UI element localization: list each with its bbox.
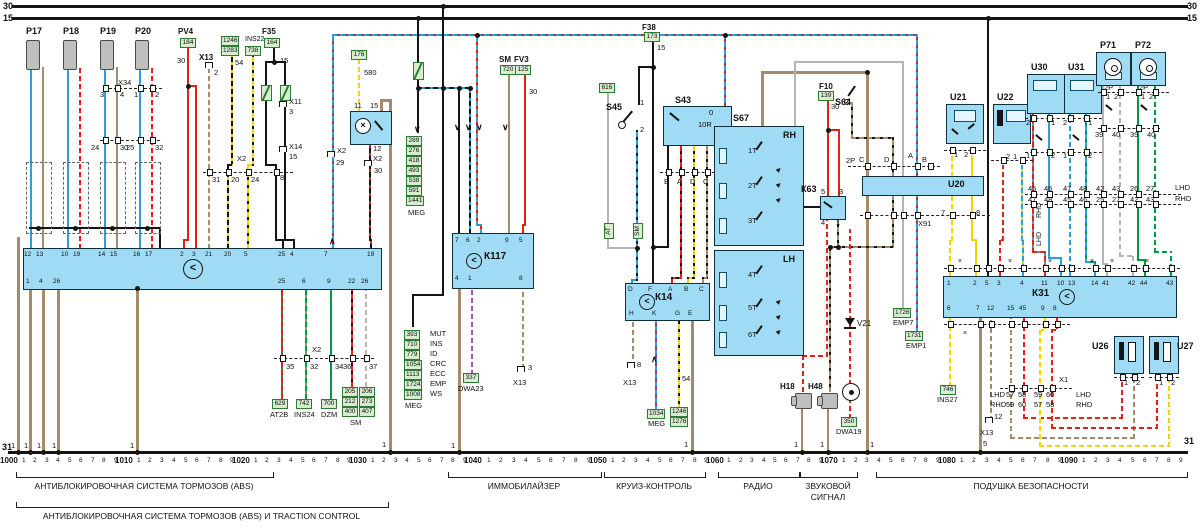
label: 2 xyxy=(1026,119,1030,127)
label: 1 xyxy=(37,442,41,450)
label: 2 xyxy=(1063,119,1067,127)
label: EMP xyxy=(430,380,446,388)
junction-dot xyxy=(145,226,150,231)
label: 43 xyxy=(1166,281,1173,288)
wire xyxy=(829,246,831,392)
label: 1 xyxy=(52,442,56,450)
code-tag: 1034 xyxy=(647,409,665,419)
code-tag: 742 xyxy=(296,399,312,409)
wire xyxy=(971,155,973,177)
inline-connector-pin xyxy=(279,146,287,152)
wire xyxy=(794,61,904,63)
label: P72 xyxy=(1135,41,1151,50)
label: 11 xyxy=(354,102,362,110)
code-tag: 164 xyxy=(264,38,280,48)
resistor xyxy=(719,332,727,348)
label: 15 xyxy=(280,57,288,65)
resistor xyxy=(719,148,727,164)
label: U30 xyxy=(1031,63,1048,72)
label: 2 xyxy=(1006,153,1010,161)
scale-tick: 6 xyxy=(1021,458,1025,465)
label: C xyxy=(699,287,704,294)
label: 12 xyxy=(373,145,381,153)
label: G xyxy=(675,311,680,318)
label: LH xyxy=(783,255,795,264)
junction-dot xyxy=(800,450,805,455)
connector-pin xyxy=(1068,149,1074,156)
section-bracket xyxy=(718,472,800,478)
scale-tick: 3 xyxy=(750,458,754,465)
shield-box xyxy=(26,162,52,234)
label: 1 xyxy=(382,441,386,449)
scale-tick: 8 xyxy=(102,458,106,465)
wire xyxy=(1023,417,1123,419)
wire xyxy=(802,355,804,392)
scale-tick: 1 xyxy=(611,458,615,465)
scale-tick: 4 xyxy=(524,458,528,465)
scale-tick: 2 xyxy=(1094,458,1098,465)
wire xyxy=(1137,207,1139,261)
label: 27 xyxy=(1112,196,1120,204)
label: PV4 xyxy=(178,28,193,36)
junction-dot xyxy=(135,450,140,455)
clock-spring-u20 xyxy=(862,176,984,196)
fuse-icon xyxy=(413,62,424,80)
label: 1 xyxy=(26,279,30,286)
connector-pin xyxy=(692,169,698,176)
label: LHD xyxy=(1076,391,1091,399)
horn-tab xyxy=(817,396,823,406)
wire xyxy=(680,143,682,279)
connector-pin xyxy=(364,355,370,362)
brand-logo: < xyxy=(466,253,482,269)
label: X2 xyxy=(337,147,346,155)
connector-pin xyxy=(138,85,144,92)
scale-tick: 3 xyxy=(634,458,638,465)
element xyxy=(1128,342,1136,362)
element xyxy=(997,110,1003,126)
label: 19 xyxy=(367,252,374,259)
label: 2 xyxy=(1149,93,1153,101)
label: 1 xyxy=(468,276,472,283)
label: 30 xyxy=(177,57,185,65)
label: 13 xyxy=(36,252,43,259)
inner-dot xyxy=(1146,65,1153,72)
connector-pin xyxy=(329,355,335,362)
label: RHD xyxy=(1175,195,1191,203)
connector-pin xyxy=(138,137,144,144)
code-tag: 1283 xyxy=(221,46,239,56)
label: D xyxy=(628,287,633,294)
junction-dot xyxy=(73,226,78,231)
wire xyxy=(655,318,657,411)
label: RH xyxy=(783,131,796,140)
label: SM xyxy=(350,419,361,427)
label: S45 xyxy=(606,103,622,112)
code-tag: 1246 xyxy=(221,36,239,46)
scale-tick: 5 xyxy=(184,458,188,465)
label: 1 xyxy=(1124,379,1128,387)
label: × xyxy=(958,258,962,265)
label: 1 xyxy=(1159,379,1163,387)
scale-number: 1040 xyxy=(464,457,482,465)
label: RHD xyxy=(1076,401,1092,409)
scale-tick: 2 xyxy=(972,458,976,465)
connector-pin xyxy=(1059,265,1065,272)
label: 4 xyxy=(455,276,459,283)
label: 5 xyxy=(821,188,825,196)
junction-dot xyxy=(468,86,473,91)
wire xyxy=(136,287,139,453)
label: 4 xyxy=(290,252,294,259)
shield-box xyxy=(63,162,89,234)
fuse-line xyxy=(281,85,289,100)
code-tag: 173 xyxy=(644,32,660,42)
code-tag: 779 xyxy=(404,350,420,360)
junction-dot xyxy=(828,245,833,250)
code-tag: 700 xyxy=(321,399,337,409)
splice-arrow-icon: ∨ xyxy=(454,123,461,132)
inner-dot xyxy=(1111,65,1118,72)
wire xyxy=(826,217,828,357)
label: 1 xyxy=(1141,93,1145,101)
label: F xyxy=(648,287,652,294)
wire xyxy=(17,237,20,453)
label: X34 xyxy=(118,79,131,87)
label: 6 xyxy=(302,279,306,286)
connector-pin xyxy=(928,163,934,170)
resistor xyxy=(719,218,727,234)
label: X2 xyxy=(312,346,321,354)
power-rail-30 xyxy=(12,5,1188,8)
connector-pin xyxy=(865,212,871,219)
code-tag: 720 xyxy=(500,65,516,75)
label: 35 xyxy=(286,363,294,371)
label: 30 xyxy=(529,88,537,96)
label: 15 xyxy=(370,102,378,110)
section-bracket xyxy=(800,472,858,478)
connector-row xyxy=(274,358,374,359)
wire xyxy=(29,287,32,453)
label: 30 xyxy=(1187,2,1197,11)
code-tag: 493 xyxy=(406,166,422,176)
power-rail-15 xyxy=(12,17,1188,20)
splice-arrow-icon: ∨ xyxy=(502,123,509,132)
label: 9 xyxy=(327,279,331,286)
connector-pin xyxy=(891,163,897,170)
code-tag: 350 xyxy=(841,417,857,427)
code-tag: 139 xyxy=(818,91,834,101)
label: 45 xyxy=(1063,196,1071,204)
label: F35 xyxy=(262,28,276,36)
label: 43 xyxy=(1146,196,1154,204)
scale-tick: 1 xyxy=(254,458,258,465)
scale-number: 1080 xyxy=(938,457,956,465)
code-tag: 1276 xyxy=(670,417,688,427)
scale-tick: 4 xyxy=(405,458,409,465)
fuse-icon xyxy=(261,85,272,101)
label: U27 xyxy=(1177,342,1194,351)
wire xyxy=(1044,251,1046,277)
resistor xyxy=(719,272,727,288)
junction-dot xyxy=(651,245,656,250)
label: 40 xyxy=(1112,131,1120,139)
label: 2 xyxy=(1171,379,1175,387)
wire xyxy=(522,286,524,369)
wire xyxy=(1039,445,1170,447)
scale-tick: 5 xyxy=(417,458,421,465)
label: 39 xyxy=(1130,131,1138,139)
label: H48 xyxy=(808,383,823,391)
scale-tick: 2 xyxy=(33,458,37,465)
wire xyxy=(1119,83,1121,195)
scale-tick: 5 xyxy=(301,458,305,465)
scale-tick: 3 xyxy=(865,458,869,465)
scale-tick: 7 xyxy=(1155,458,1159,465)
connector-pin xyxy=(1118,89,1124,96)
scale-tick: 2 xyxy=(854,458,858,465)
label: INS22 xyxy=(245,36,264,43)
label: P19 xyxy=(100,27,116,36)
scale-tick: 2 xyxy=(622,458,626,465)
junction-dot xyxy=(836,245,841,250)
junction-dot xyxy=(110,226,115,231)
inline-connector-pin xyxy=(327,151,335,157)
label: 42 xyxy=(1130,196,1138,204)
pretensioner-icon xyxy=(1139,58,1157,76)
label: 2P xyxy=(1139,84,1148,92)
label: 41 xyxy=(1102,281,1109,288)
label: 1 xyxy=(11,442,15,450)
label: 10 xyxy=(61,252,68,259)
label: INS24 xyxy=(294,411,315,419)
junction-dot xyxy=(723,33,728,38)
label: F38 xyxy=(642,24,656,32)
label: F10 xyxy=(819,83,833,91)
scale-tick: 1 xyxy=(137,458,141,465)
code-tag: 1441 xyxy=(406,196,424,206)
label: 6Т xyxy=(748,331,757,339)
wire xyxy=(987,17,989,277)
scale-number: 1000 xyxy=(0,457,18,465)
wire xyxy=(851,137,894,139)
junction-dot xyxy=(986,16,991,21)
label: 7 xyxy=(324,252,328,259)
wire xyxy=(667,143,669,248)
scale-tick: 5 xyxy=(889,458,893,465)
horn-h48 xyxy=(821,393,838,409)
scale-tick: 1 xyxy=(842,458,846,465)
label: 3 xyxy=(100,91,104,99)
connector-pin xyxy=(865,163,871,170)
connector-pin xyxy=(915,212,921,219)
wire xyxy=(227,164,229,249)
wire xyxy=(417,17,419,63)
label: 2 xyxy=(1136,379,1140,387)
scale-tick: 7 xyxy=(1033,458,1037,465)
connector-pin xyxy=(989,321,995,328)
code-tag: 1726 xyxy=(893,308,911,318)
scale-tick: 3 xyxy=(394,458,398,465)
code-tag: 1724 xyxy=(404,380,422,390)
inner-dot xyxy=(849,390,854,395)
label: 7 xyxy=(455,238,459,245)
label: 8 xyxy=(1053,306,1057,313)
code-tag: 629 xyxy=(272,399,288,409)
label: 2 xyxy=(1114,93,1118,101)
wire xyxy=(265,98,267,166)
label: 37 xyxy=(369,363,377,371)
label: 2 xyxy=(1088,152,1092,160)
connector-pin xyxy=(350,355,356,362)
wire xyxy=(607,247,638,249)
wire xyxy=(247,164,249,249)
code-tag: 184 xyxy=(180,38,196,48)
label: LHD xyxy=(1036,232,1043,246)
label: 54 xyxy=(235,59,243,67)
scale-tick: 5 xyxy=(773,458,777,465)
label: X13 xyxy=(623,379,636,387)
scale-tick: 2 xyxy=(265,458,269,465)
wire xyxy=(389,99,392,453)
wire xyxy=(851,102,853,139)
wire xyxy=(330,287,332,399)
element xyxy=(1154,342,1159,360)
label: 42 xyxy=(1096,185,1104,193)
section-label: СИГНАЛ xyxy=(658,492,998,502)
wire xyxy=(1121,376,1123,419)
scale-tick: 7 xyxy=(562,458,566,465)
label: X2 xyxy=(237,155,246,163)
scale-tick: 6 xyxy=(901,458,905,465)
label: 47 xyxy=(1063,185,1071,193)
label: 15 xyxy=(3,14,13,23)
connector-pin xyxy=(1105,265,1111,272)
wheel-speed-sensor-p18 xyxy=(63,40,77,70)
scale-tick: 8 xyxy=(574,458,578,465)
code-tag: 1731 xyxy=(905,331,923,341)
label: DZM xyxy=(321,411,337,419)
code-tag: 746 xyxy=(940,385,956,395)
label: 46 xyxy=(1044,185,1052,193)
wire xyxy=(1085,207,1087,263)
wire xyxy=(1119,207,1121,257)
connector-row xyxy=(991,160,1033,161)
wire xyxy=(1137,83,1139,195)
wire xyxy=(849,229,851,385)
scale-number: 1010 xyxy=(115,457,133,465)
wire xyxy=(1102,207,1104,265)
splice-arrow-icon: ∧ xyxy=(651,355,658,364)
wire xyxy=(794,61,796,127)
label: 24 xyxy=(251,176,259,184)
wire xyxy=(471,286,473,375)
wire xyxy=(801,206,821,208)
junction-dot xyxy=(457,86,462,91)
junction-dot xyxy=(635,246,640,251)
wire xyxy=(365,287,367,387)
label: 2 xyxy=(180,252,184,259)
diode-icon xyxy=(845,318,855,326)
scale-tick: 3 xyxy=(985,458,989,465)
connector-pin xyxy=(1068,115,1074,122)
scale-tick: 7 xyxy=(207,458,211,465)
wire xyxy=(827,100,829,197)
label: К14 xyxy=(655,293,672,303)
code-tag: 276 xyxy=(406,146,422,156)
code-tag: 538 xyxy=(406,176,422,186)
scale-tick: 4 xyxy=(646,458,650,465)
junction-dot xyxy=(135,286,140,291)
scale-tick: 6 xyxy=(428,458,432,465)
wire xyxy=(252,55,254,166)
label: 8 xyxy=(280,174,284,182)
wire xyxy=(57,287,60,453)
label: 580 xyxy=(364,69,377,77)
code-tag: 212 xyxy=(342,397,358,407)
label: ECC xyxy=(430,370,446,378)
label: 11 xyxy=(1041,281,1048,288)
label: 45 xyxy=(1028,185,1036,193)
scale-number: 1030 xyxy=(349,457,367,465)
horn-tab xyxy=(791,396,797,406)
label: X2 xyxy=(373,155,382,163)
junction-dot xyxy=(56,450,61,455)
label: 54 xyxy=(682,375,690,383)
label: MEG xyxy=(408,209,425,217)
section-bracket xyxy=(604,472,706,478)
label: P17 xyxy=(26,27,42,36)
scale-number: 1050 xyxy=(589,457,607,465)
junction-dot xyxy=(651,65,656,70)
label: 39 xyxy=(1095,131,1103,139)
label: 20 xyxy=(224,252,231,259)
label: 1 xyxy=(1063,152,1067,160)
label: 4 xyxy=(821,219,825,227)
label: 12 xyxy=(994,413,1002,421)
scale-tick: 4 xyxy=(877,458,881,465)
label: 57 xyxy=(1034,401,1042,409)
junction-dot xyxy=(690,450,695,455)
label: 57 xyxy=(1006,391,1014,399)
lamp-icon: × xyxy=(355,118,371,134)
label: AT2B xyxy=(270,411,288,419)
code-tag: 273 xyxy=(359,397,375,407)
splice-arrow-icon: ∧ xyxy=(329,237,336,246)
connector-pin xyxy=(1021,265,1027,272)
resistor xyxy=(719,183,727,199)
label: X11 xyxy=(289,98,302,106)
connector-pin xyxy=(970,147,976,154)
junction-dot xyxy=(978,450,983,455)
label: 7 xyxy=(976,306,980,313)
connector-pin xyxy=(1131,265,1137,272)
scale-tick: 1 xyxy=(487,458,491,465)
label: 26 xyxy=(53,279,60,286)
switch-blade xyxy=(1036,134,1043,140)
junction-dot xyxy=(457,450,462,455)
label: × xyxy=(1110,258,1114,265)
connector-pin xyxy=(891,212,897,219)
label: 3 xyxy=(192,252,196,259)
wire xyxy=(369,142,371,241)
connector-row xyxy=(1098,128,1160,129)
wiring-diagram: 1000123456789101012345678910201234567891… xyxy=(0,0,1200,528)
label: D xyxy=(884,156,889,164)
scale-tick: 5 xyxy=(1131,458,1135,465)
connector-pin xyxy=(1169,265,1175,272)
label: 1 xyxy=(1026,152,1030,160)
